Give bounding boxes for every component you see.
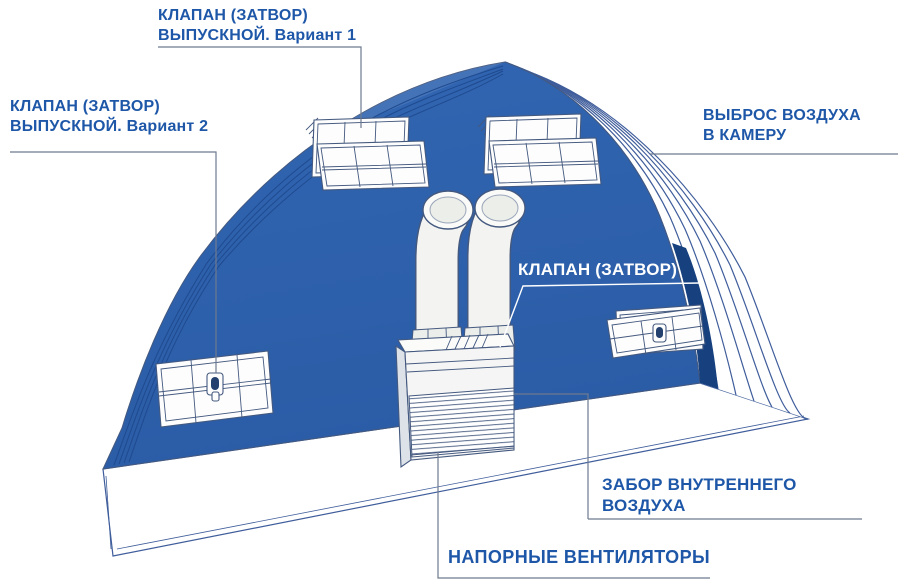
- label-line: В КАМЕРУ: [703, 126, 861, 146]
- label-pressure-fans: НАПОРНЫЕ ВЕНТИЛЯТОРЫ: [448, 546, 710, 569]
- label-line: ЗАБОР ВНУТРЕННЕГО: [602, 474, 797, 495]
- label-valve-shutter: КЛАПАН (ЗАТВОР): [518, 259, 677, 280]
- label-line: КЛАПАН (ЗАТВОР): [158, 6, 356, 26]
- label-line: КЛАПАН (ЗАТВОР): [10, 97, 208, 117]
- label-line: НАПОРНЫЕ ВЕНТИЛЯТОРЫ: [448, 546, 710, 569]
- label-internal-air-intake: ЗАБОР ВНУТРЕННЕГО ВОЗДУХА: [602, 474, 797, 517]
- label-line: КЛАПАН (ЗАТВОР): [518, 259, 677, 280]
- label-valve-outlet-v1: КЛАПАН (ЗАТВОР) ВЫПУСКНОЙ. Вариант 1: [158, 6, 356, 46]
- label-line: ВЫПУСКНОЙ. Вариант 1: [158, 26, 356, 46]
- label-line: ВЫБРОС ВОЗДУХА: [703, 106, 861, 126]
- ventilation-diagram: КЛАПАН (ЗАТВОР) ВЫПУСКНОЙ. Вариант 1 КЛА…: [0, 0, 900, 588]
- fan-unit-louvers: [409, 388, 514, 457]
- exhaust-hatch-closed: [156, 351, 273, 427]
- label-air-exhaust: ВЫБРОС ВОЗДУХА В КАМЕРУ: [703, 106, 861, 146]
- wall-valve-hatch: [607, 305, 705, 358]
- label-line: ВЫПУСКНОЙ. Вариант 2: [10, 117, 208, 137]
- label-line: ВОЗДУХА: [602, 495, 797, 516]
- label-valve-outlet-v2: КЛАПАН (ЗАТВОР) ВЫПУСКНОЙ. Вариант 2: [10, 97, 208, 137]
